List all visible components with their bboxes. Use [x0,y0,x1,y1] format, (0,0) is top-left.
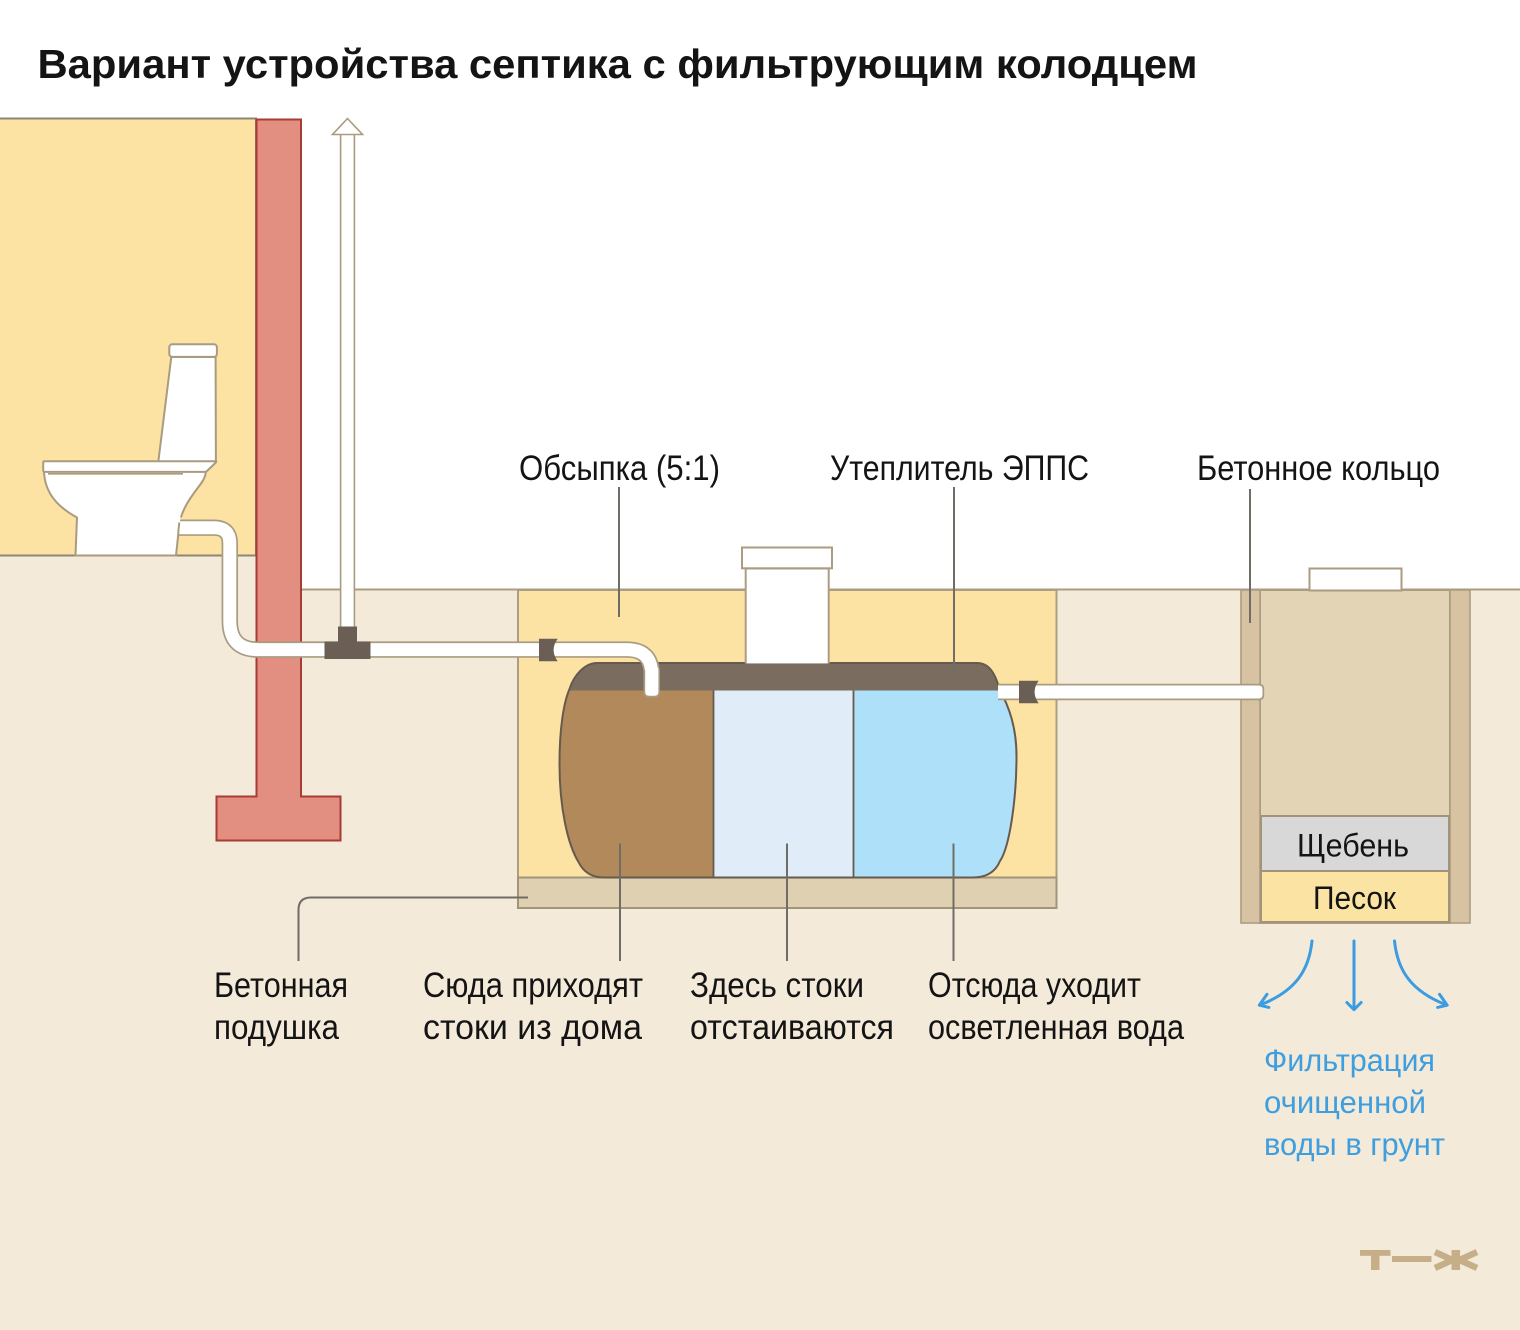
svg-text:подушка: подушка [214,1008,339,1047]
svg-text:Бетонное кольцо: Бетонное кольцо [1197,449,1440,488]
svg-text:Утеплитель ЭППС: Утеплитель ЭППС [830,449,1089,488]
svg-text:осветленная вода: осветленная вода [928,1008,1184,1047]
svg-text:очищенной: очищенной [1264,1084,1426,1120]
svg-text:Обсыпка (5:1): Обсыпка (5:1) [519,449,720,488]
svg-text:Отсюда уходит: Отсюда уходит [928,966,1141,1005]
svg-text:Фильтрация: Фильтрация [1264,1042,1435,1078]
svg-text:Здесь стоки: Здесь стоки [690,966,864,1005]
svg-text:Песок: Песок [1313,880,1397,916]
svg-text:Бетонная: Бетонная [214,966,348,1005]
svg-text:Вариант устройства септика с ф: Вариант устройства септика с фильтрующим… [38,41,1198,87]
svg-text:Щебень: Щебень [1297,828,1409,864]
svg-text:отстаиваются: отстаиваются [690,1008,894,1047]
svg-text:Сюда приходят: Сюда приходят [423,966,643,1005]
svg-text:стоки из дома: стоки из дома [423,1008,643,1047]
svg-text:воды в грунт: воды в грунт [1264,1126,1445,1162]
